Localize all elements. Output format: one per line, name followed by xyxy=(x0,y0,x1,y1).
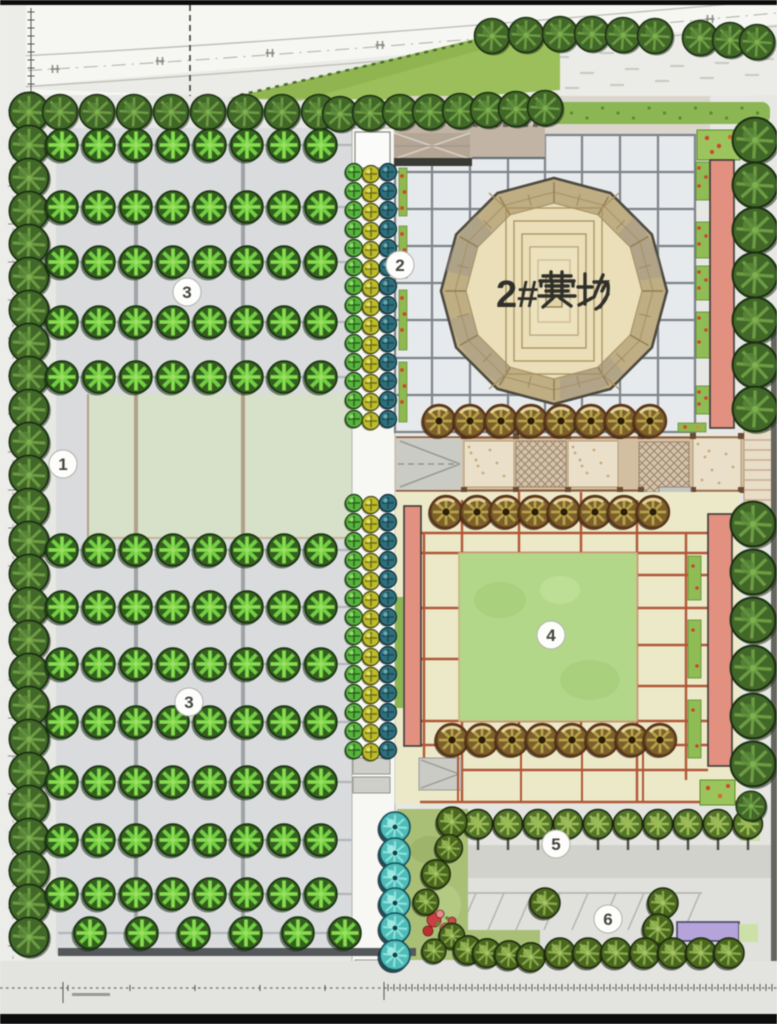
svg-text:3: 3 xyxy=(182,283,191,302)
svg-text:4: 4 xyxy=(546,626,556,645)
svg-text:2#: 2# xyxy=(496,274,538,316)
svg-text:2: 2 xyxy=(395,256,404,275)
svg-text:1: 1 xyxy=(58,455,67,474)
svg-text:6: 6 xyxy=(603,910,612,929)
svg-text:3: 3 xyxy=(184,693,193,712)
svg-text:5: 5 xyxy=(551,835,560,854)
